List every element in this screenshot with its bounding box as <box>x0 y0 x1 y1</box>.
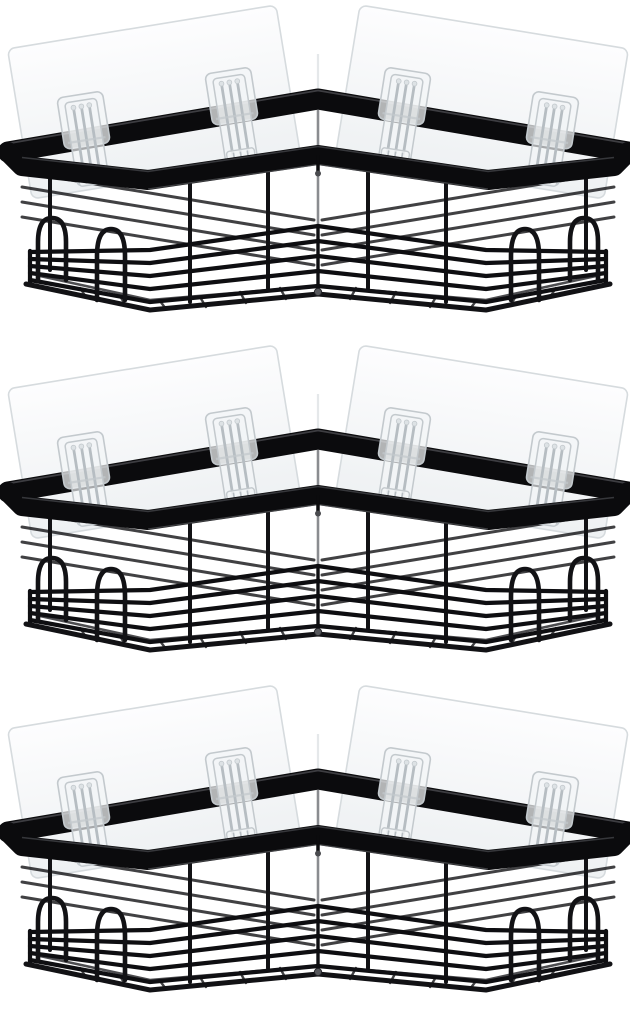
corner-shower-caddy-caddy-2 <box>0 342 630 674</box>
corner-shower-caddy-caddy-3 <box>0 682 630 1014</box>
caddy-render <box>0 342 630 674</box>
caddy-render <box>0 2 630 334</box>
corner-shower-caddy-caddy-1 <box>0 2 630 334</box>
caddy-render <box>0 682 630 1014</box>
product-photo <box>0 0 630 1024</box>
caddy-stack <box>0 0 630 1014</box>
